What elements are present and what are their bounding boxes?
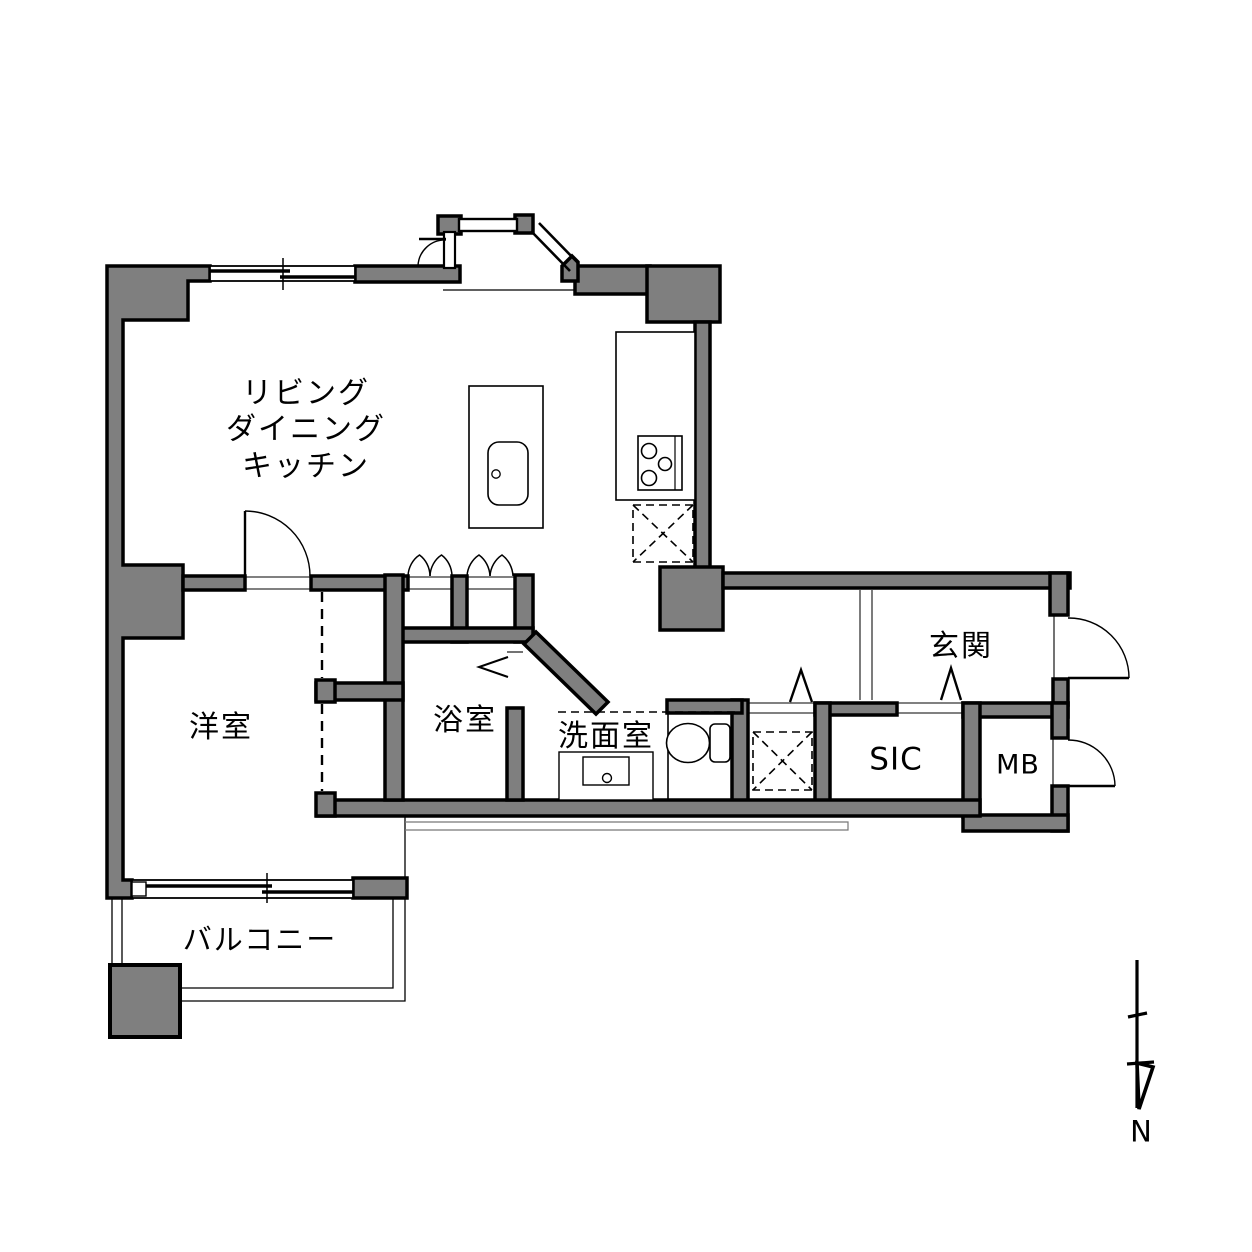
entrance-door [1068, 618, 1129, 678]
wall-south-stub [316, 793, 335, 816]
bay-window-horizontal [459, 219, 517, 231]
wall-bath-east-stub [507, 708, 523, 800]
wall-wcloset-stub [316, 680, 335, 702]
wall-sic-left [815, 703, 830, 803]
wroom-door [245, 511, 310, 576]
wall-closet-bottom [400, 628, 533, 642]
bay-windows [443, 219, 578, 290]
wall-mb-right-upper [1052, 703, 1068, 738]
label-sic: SIC [869, 745, 922, 776]
label-washroom: 洗面室 [558, 722, 654, 752]
eaves-line [405, 822, 848, 830]
toilet-icon [667, 724, 731, 763]
pillar-kitchen-south [660, 567, 723, 630]
floor-plan: リビング ダイニング キッチン 洋室 浴室 洗面室 玄関 SIC MB バルコニ… [0, 0, 1252, 1252]
wall-toilet-right [732, 700, 748, 803]
fold-door-indicator-sic [941, 668, 961, 700]
wall-toilet-top [667, 700, 742, 713]
label-ldk-line3: キッチン [242, 452, 370, 482]
stove-icon [638, 436, 682, 490]
wall-ldk-east [695, 322, 710, 568]
label-mb: MB [996, 752, 1040, 779]
washing-machine-space [753, 732, 812, 790]
label-balcony: バルコニー [183, 926, 337, 955]
wall-south-main [317, 800, 980, 816]
floor-plan-drawing [0, 0, 1252, 1252]
bay-door [418, 239, 446, 266]
mb-door [1068, 740, 1115, 786]
wall-entry-below-door [1053, 679, 1068, 705]
label-entrance: 玄関 [929, 632, 993, 662]
faucet-icon [492, 470, 500, 478]
pillar-entry-corner [1050, 573, 1068, 615]
kitchen-counter [616, 332, 695, 500]
entrance-step-line [860, 590, 872, 700]
bay-window-vertical [444, 232, 455, 268]
label-bathroom: 浴室 [433, 706, 497, 736]
refrigerator-space [633, 505, 693, 562]
label-ldk-line1: リビング [242, 379, 370, 409]
balcony-column [110, 965, 180, 1037]
fold-door-indicator-laundry [790, 670, 812, 702]
kitchen-island [469, 386, 543, 528]
pillar-wroom-southeast [353, 878, 407, 898]
wall-diagonal [524, 632, 608, 714]
window-wroom-south [132, 873, 353, 903]
label-ldk-line2: ダイニング [226, 415, 386, 445]
closet-bifold-doors [408, 555, 513, 576]
wall-partition-west [183, 576, 245, 590]
label-western-room: 洋室 [189, 713, 253, 743]
wall-top-right [575, 266, 650, 294]
vanity-sink-icon [559, 752, 653, 800]
label-north: N [1130, 1118, 1152, 1147]
north-compass-icon [1127, 960, 1154, 1109]
bath-folding-door [479, 657, 508, 677]
wall-corridor-north [723, 573, 1070, 588]
pillar-northeast [647, 266, 720, 322]
window-ldk-north [210, 258, 355, 290]
